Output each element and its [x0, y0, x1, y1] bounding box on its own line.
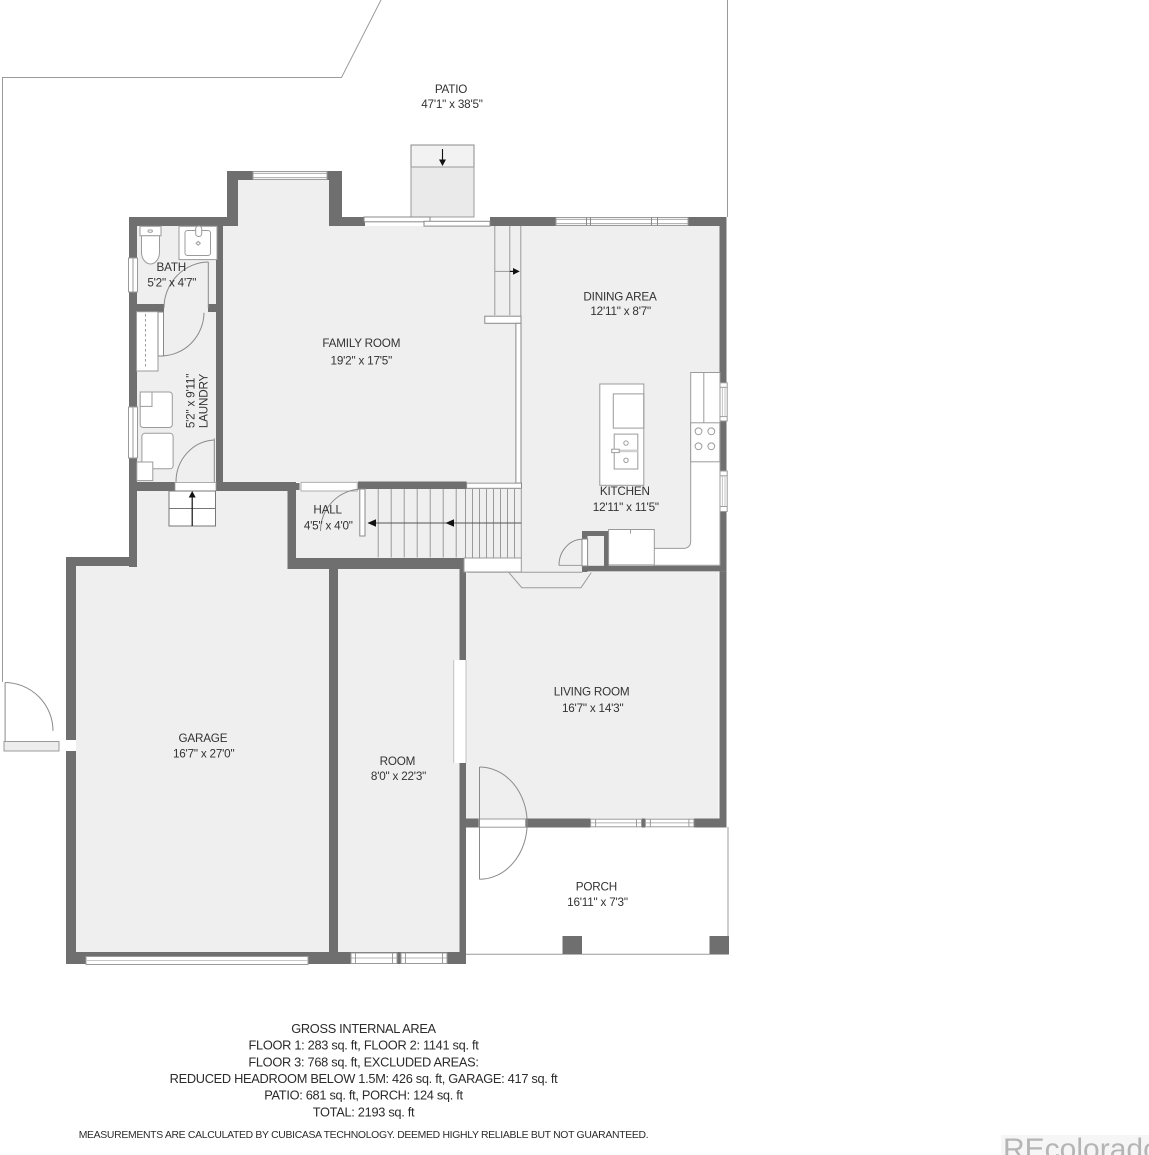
svg-text:19'2" x 17'5": 19'2" x 17'5" — [331, 355, 393, 368]
svg-text:LIVING ROOM: LIVING ROOM — [554, 685, 630, 698]
svg-text:TOTAL: 2193 sq. ft: TOTAL: 2193 sq. ft — [313, 1104, 415, 1119]
svg-text:PORCH: PORCH — [576, 880, 617, 893]
svg-text:PATIO: 681 sq. ft, PORCH: 124: PATIO: 681 sq. ft, PORCH: 124 sq. ft — [264, 1088, 463, 1103]
svg-text:REcolorado: REcolorado — [1003, 1133, 1149, 1155]
svg-text:GARAGE: GARAGE — [178, 732, 227, 745]
svg-text:DINING AREA: DINING AREA — [583, 290, 657, 303]
svg-text:FLOOR 3: 768 sq. ft, EXCLUDED: FLOOR 3: 768 sq. ft, EXCLUDED AREAS: — [248, 1054, 478, 1069]
svg-text:ROOM: ROOM — [380, 755, 416, 768]
svg-text:BATH: BATH — [157, 261, 187, 274]
svg-text:FAMILY ROOM: FAMILY ROOM — [322, 337, 400, 350]
svg-text:16'11" x 7'3": 16'11" x 7'3" — [567, 896, 628, 909]
svg-text:PATIO: PATIO — [435, 83, 467, 96]
svg-text:47'1" x 38'5": 47'1" x 38'5" — [421, 98, 483, 111]
svg-text:8'0" x 22'3": 8'0" x 22'3" — [371, 770, 426, 783]
svg-text:LAUNDRY: LAUNDRY — [198, 373, 211, 428]
svg-text:REDUCED HEADROOM BELOW 1.5M: 4: REDUCED HEADROOM BELOW 1.5M: 426 sq. ft,… — [170, 1071, 558, 1086]
svg-text:MEASUREMENTS ARE CALCULATED BY: MEASUREMENTS ARE CALCULATED BY CUBICASA … — [79, 1130, 649, 1141]
svg-text:16'7" x 14'3": 16'7" x 14'3" — [562, 702, 624, 715]
svg-text:KITCHEN: KITCHEN — [600, 485, 650, 498]
svg-text:16'7" x 27'0": 16'7" x 27'0" — [173, 748, 235, 761]
svg-text:GROSS INTERNAL AREA: GROSS INTERNAL AREA — [291, 1021, 436, 1036]
svg-text:4'5" x 4'0": 4'5" x 4'0" — [304, 520, 353, 533]
svg-text:5'2" x 4'7": 5'2" x 4'7" — [147, 276, 196, 289]
svg-text:12'11" x 11'5": 12'11" x 11'5" — [593, 501, 659, 514]
svg-text:12'11" x 8'7": 12'11" x 8'7" — [590, 305, 651, 318]
svg-text:HALL: HALL — [313, 504, 342, 517]
svg-text:5'2" x 9'11": 5'2" x 9'11" — [185, 374, 198, 428]
svg-text:FLOOR 1: 283 sq. ft, FLOOR 2:: FLOOR 1: 283 sq. ft, FLOOR 2: 1141 sq. f… — [249, 1038, 480, 1053]
